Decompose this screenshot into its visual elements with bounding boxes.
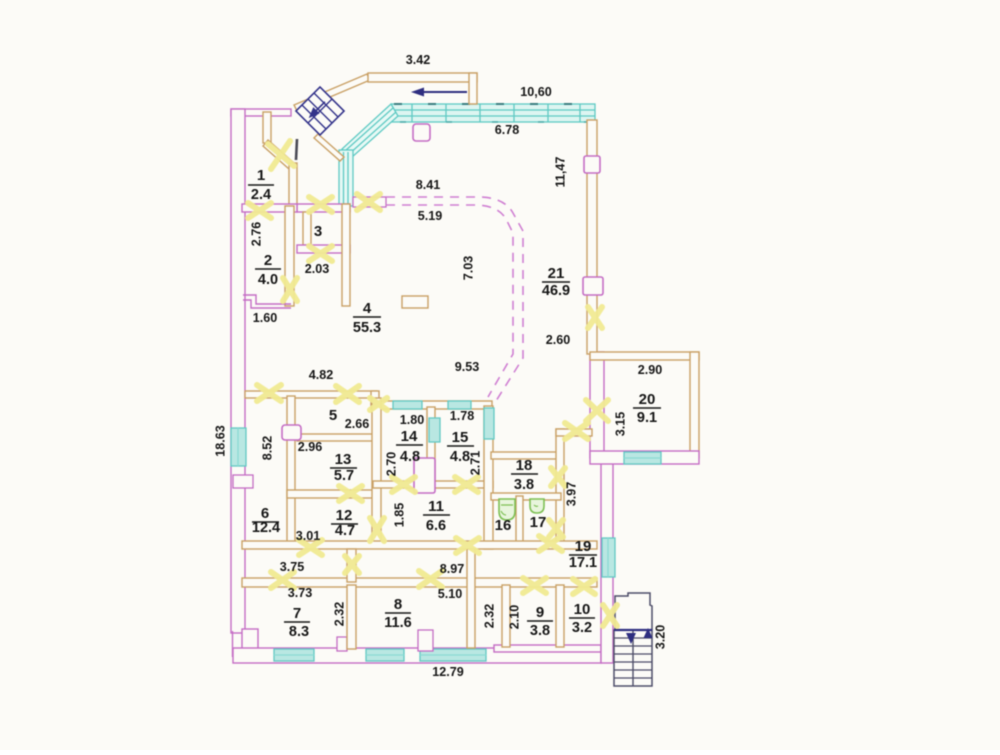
svg-text:3.20: 3.20 bbox=[654, 625, 668, 650]
svg-text:4.8: 4.8 bbox=[450, 449, 470, 465]
svg-text:3.73: 3.73 bbox=[288, 586, 313, 600]
svg-text:18: 18 bbox=[516, 457, 533, 474]
svg-text:3.97: 3.97 bbox=[565, 482, 579, 507]
svg-text:5: 5 bbox=[329, 407, 337, 424]
svg-text:10,60: 10,60 bbox=[520, 85, 552, 99]
svg-text:1.85: 1.85 bbox=[393, 503, 407, 528]
svg-text:12: 12 bbox=[336, 507, 353, 524]
svg-text:16: 16 bbox=[495, 517, 512, 534]
svg-text:8: 8 bbox=[394, 596, 402, 613]
svg-text:2.76: 2.76 bbox=[250, 222, 264, 247]
svg-text:9.1: 9.1 bbox=[637, 410, 657, 426]
svg-text:3.75: 3.75 bbox=[280, 560, 305, 574]
svg-text:11: 11 bbox=[428, 498, 444, 515]
svg-text:7.03: 7.03 bbox=[462, 256, 476, 281]
svg-text:7: 7 bbox=[293, 605, 301, 622]
svg-text:3.01: 3.01 bbox=[296, 529, 321, 543]
svg-text:2.71: 2.71 bbox=[469, 451, 483, 476]
svg-text:2.10: 2.10 bbox=[508, 605, 522, 630]
svg-text:11.6: 11.6 bbox=[384, 615, 411, 631]
svg-text:2.32: 2.32 bbox=[333, 602, 347, 627]
svg-text:2.96: 2.96 bbox=[298, 440, 323, 454]
svg-text:10: 10 bbox=[574, 601, 591, 618]
svg-text:17.1: 17.1 bbox=[569, 555, 597, 571]
svg-text:5.10: 5.10 bbox=[438, 587, 463, 601]
svg-text:9.53: 9.53 bbox=[455, 360, 480, 374]
svg-text:3.8: 3.8 bbox=[530, 623, 550, 639]
svg-text:4.7: 4.7 bbox=[335, 523, 355, 539]
svg-text:9: 9 bbox=[536, 604, 544, 621]
svg-text:15: 15 bbox=[452, 429, 469, 446]
svg-text:1: 1 bbox=[257, 167, 265, 184]
svg-text:4.82: 4.82 bbox=[309, 368, 334, 382]
svg-text:8.3: 8.3 bbox=[289, 624, 309, 640]
svg-text:3.15: 3.15 bbox=[614, 412, 628, 437]
svg-text:5.7: 5.7 bbox=[334, 468, 354, 484]
svg-text:2.60: 2.60 bbox=[546, 333, 571, 347]
svg-text:21: 21 bbox=[548, 265, 565, 282]
svg-text:8.52: 8.52 bbox=[261, 436, 275, 461]
svg-text:8.41: 8.41 bbox=[416, 178, 441, 192]
svg-text:12.4: 12.4 bbox=[252, 520, 280, 536]
svg-text:19: 19 bbox=[575, 538, 592, 555]
svg-text:1.80: 1.80 bbox=[400, 413, 425, 427]
svg-text:3.8: 3.8 bbox=[514, 477, 534, 493]
svg-text:13: 13 bbox=[335, 451, 352, 468]
svg-text:5.19: 5.19 bbox=[418, 209, 443, 223]
svg-text:6.78: 6.78 bbox=[495, 123, 520, 137]
svg-text:3.2: 3.2 bbox=[572, 620, 592, 636]
svg-text:3: 3 bbox=[314, 223, 322, 240]
svg-text:11,47: 11,47 bbox=[554, 157, 568, 188]
svg-text:1.78: 1.78 bbox=[450, 409, 475, 423]
svg-text:2.66: 2.66 bbox=[345, 417, 370, 431]
svg-text:4.8: 4.8 bbox=[400, 449, 420, 465]
svg-text:3.42: 3.42 bbox=[406, 53, 431, 67]
svg-text:2.70: 2.70 bbox=[385, 452, 399, 477]
svg-text:4: 4 bbox=[363, 300, 372, 317]
svg-text:2.32: 2.32 bbox=[483, 604, 497, 629]
svg-text:18.63: 18.63 bbox=[214, 425, 228, 457]
svg-text:2.03: 2.03 bbox=[305, 262, 330, 276]
svg-text:17: 17 bbox=[530, 514, 547, 531]
svg-text:6.6: 6.6 bbox=[426, 518, 446, 534]
svg-text:46.9: 46.9 bbox=[542, 283, 570, 299]
svg-text:2.90: 2.90 bbox=[638, 363, 663, 377]
svg-text:1.60: 1.60 bbox=[253, 311, 278, 325]
svg-text:20: 20 bbox=[639, 391, 656, 408]
svg-text:8.97: 8.97 bbox=[440, 562, 465, 576]
svg-text:4.0: 4.0 bbox=[258, 272, 278, 288]
svg-text:2: 2 bbox=[264, 252, 272, 269]
svg-text:14: 14 bbox=[401, 428, 418, 445]
svg-text:2.4: 2.4 bbox=[251, 187, 271, 203]
svg-text:55.3: 55.3 bbox=[353, 320, 381, 336]
svg-text:12.79: 12.79 bbox=[432, 665, 464, 679]
